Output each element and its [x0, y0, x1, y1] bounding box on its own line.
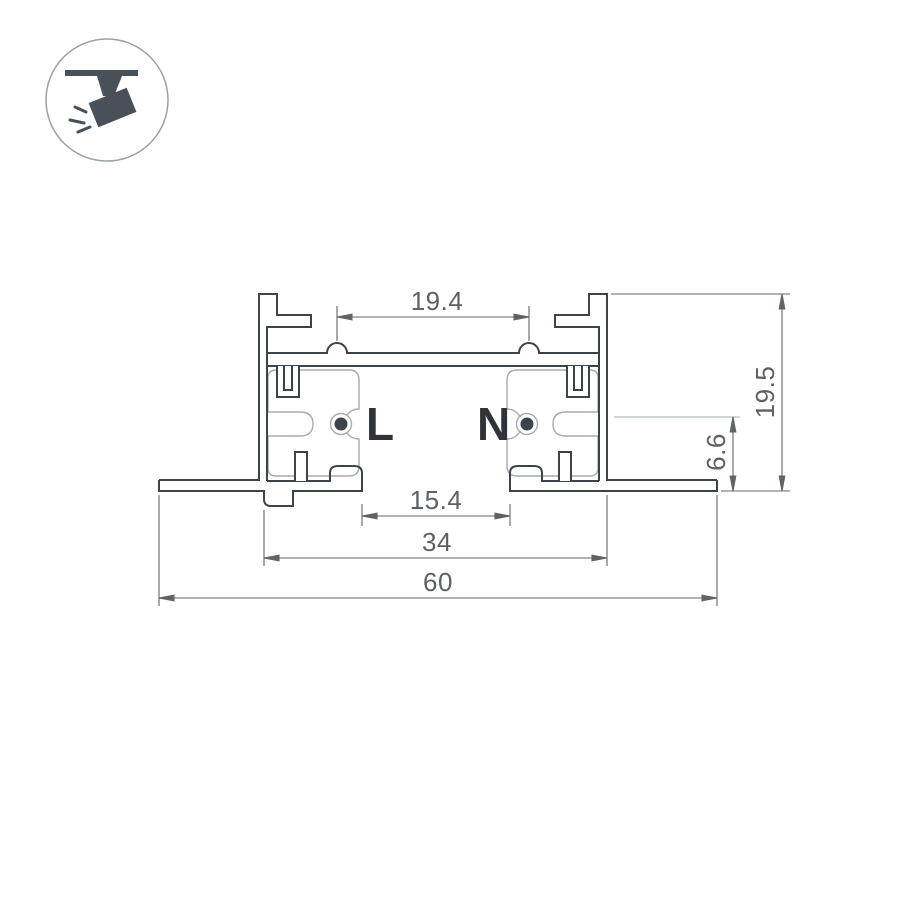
profile-outline	[159, 294, 717, 506]
insulators	[268, 370, 598, 476]
live-label: L	[366, 398, 394, 450]
profile-cross-section-drawing: L N 19.4 19.5 6.6 15.4	[0, 0, 900, 900]
left-rising-tab	[295, 452, 307, 481]
track-spotlight-icon	[46, 39, 168, 161]
right-rising-tab	[559, 452, 571, 481]
neutral-label: N	[477, 398, 510, 450]
neutral-conductor-core	[521, 418, 534, 431]
dim-value-top-opening: 19.4	[411, 286, 464, 316]
drawing-canvas: L N 19.4 19.5 6.6 15.4	[0, 0, 900, 900]
dim-value-bottom-opening: 15.4	[410, 485, 463, 515]
icon-track-bar	[65, 70, 138, 76]
arrowhead	[779, 294, 785, 309]
arrowhead	[264, 555, 279, 561]
right-flange-and-floor	[510, 466, 717, 491]
arrowhead	[337, 314, 352, 320]
arrowhead	[779, 476, 785, 491]
live-conductor-core	[335, 418, 348, 431]
dim-value-overall-height: 19.5	[750, 366, 780, 419]
arrowhead	[730, 417, 736, 432]
right-hanging-tab	[567, 366, 589, 397]
dim-value-overall-width: 60	[423, 567, 453, 597]
left-insulator-slot	[268, 412, 313, 436]
arrowhead	[159, 595, 174, 601]
arrowhead	[362, 513, 377, 519]
arrowhead	[514, 314, 529, 320]
right-insulator-slot	[553, 412, 598, 436]
deck-top-surface	[267, 343, 599, 353]
left-hanging-tab	[277, 366, 299, 397]
arrowhead	[702, 595, 717, 601]
arrowhead	[495, 513, 510, 519]
dimension-top-opening: 19.4	[337, 286, 529, 341]
dim-value-conductor-depth: 6.6	[701, 433, 731, 471]
dimension-bottom-opening: 15.4	[362, 485, 510, 526]
arrowhead	[592, 555, 607, 561]
conductors: L N	[331, 398, 538, 450]
dim-value-body-width: 34	[422, 527, 452, 557]
arrowhead	[730, 476, 736, 491]
